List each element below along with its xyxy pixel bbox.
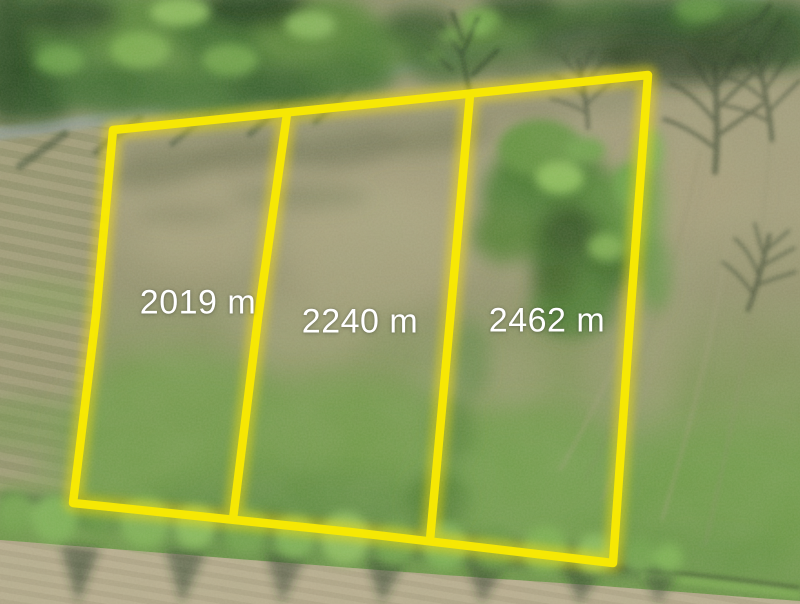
parcel-2-area-label: 2240 m [302, 303, 418, 342]
aerial-parcel-photo: 2019 m 2240 m 2462 m [0, 0, 800, 604]
parcel-1-area-label: 2019 m [140, 284, 256, 323]
parcel-3-area-label: 2462 m [489, 302, 605, 341]
